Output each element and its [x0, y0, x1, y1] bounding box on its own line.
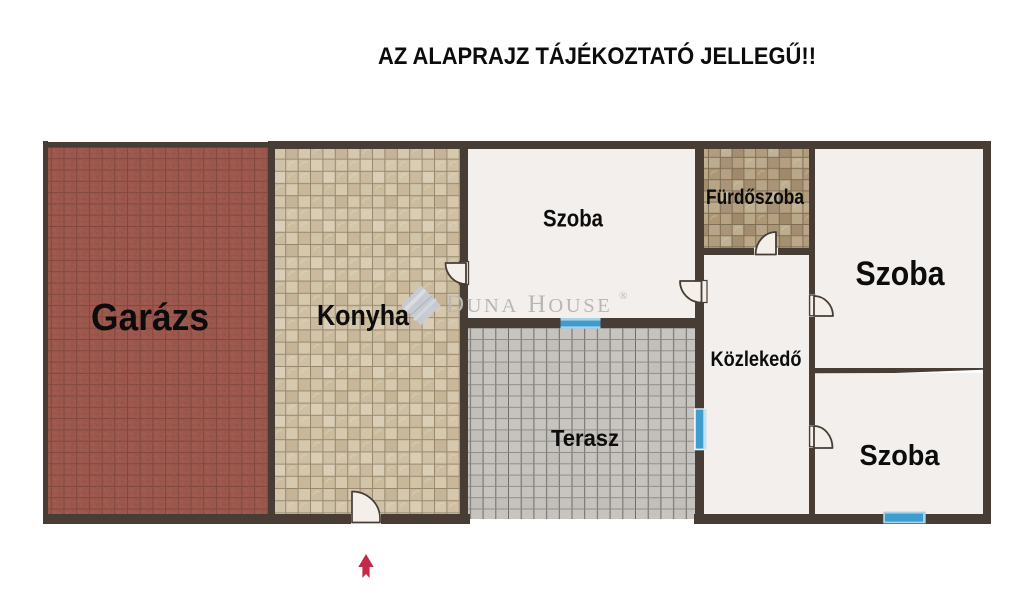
svg-text:Szoba: Szoba — [860, 440, 941, 472]
svg-text:Szoba: Szoba — [543, 206, 604, 233]
svg-text:Terasz: Terasz — [551, 425, 619, 451]
svg-text:Konyha: Konyha — [317, 300, 410, 332]
svg-text:Fürdőszoba: Fürdőszoba — [706, 185, 805, 209]
svg-text:DUNA HOUSE: DUNA HOUSE — [446, 291, 612, 318]
svg-text:Közlekedő: Közlekedő — [711, 348, 802, 371]
svg-text:Garázs: Garázs — [91, 297, 209, 339]
svg-text:®: ® — [619, 290, 627, 302]
svg-text:Szoba: Szoba — [856, 255, 946, 293]
svg-text:AZ ALAPRAJZ TÁJÉKOZTATÓ JELLEG: AZ ALAPRAJZ TÁJÉKOZTATÓ JELLEGŰ!! — [378, 42, 816, 70]
